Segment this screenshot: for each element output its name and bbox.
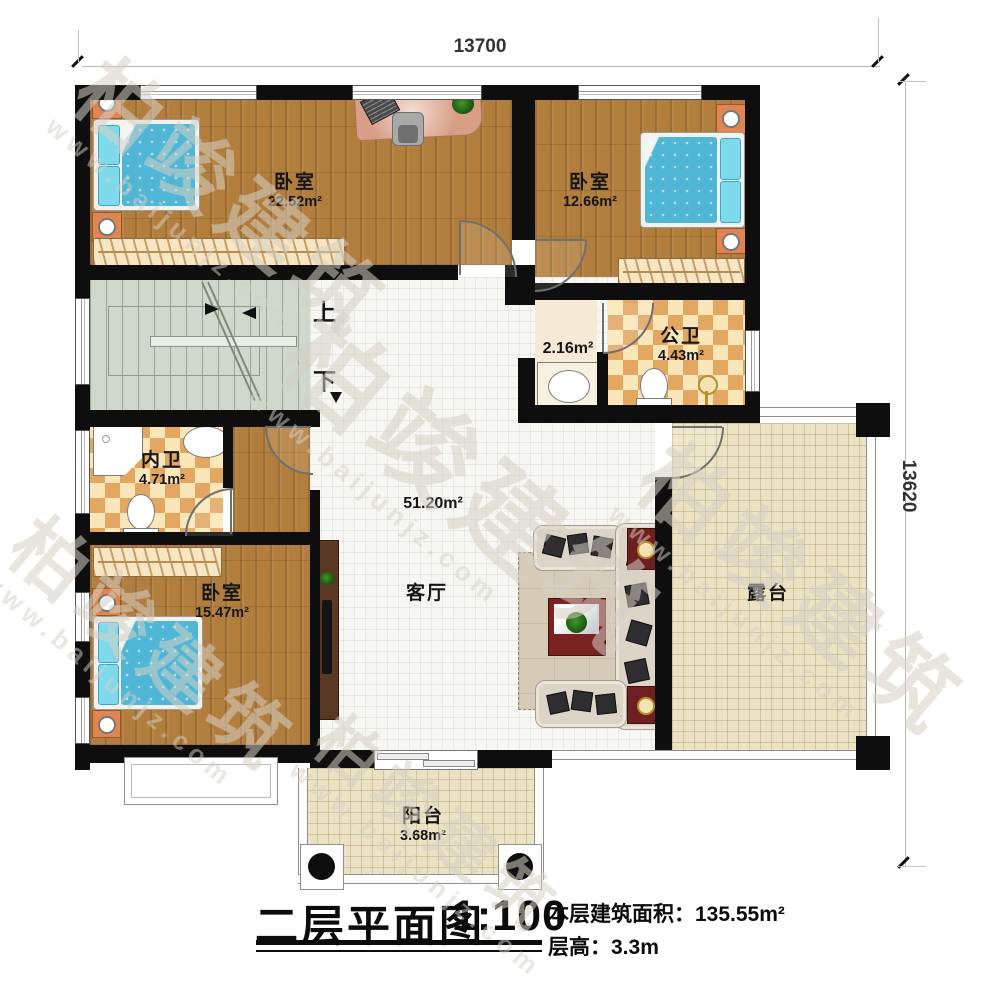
room-name: 内卫 bbox=[107, 450, 217, 472]
tv-icon bbox=[322, 600, 332, 674]
sliding-door bbox=[374, 750, 478, 770]
sofa-pillow bbox=[567, 533, 590, 556]
room-area: 12.66m² bbox=[535, 194, 645, 211]
lamp-icon bbox=[722, 233, 740, 251]
wall-innerhall-east bbox=[310, 490, 320, 545]
wall-left bbox=[75, 85, 90, 770]
bed bbox=[640, 132, 745, 228]
stair-handrail bbox=[150, 336, 297, 347]
bedroom-bottom-left-label: 卧室 15.47m² bbox=[167, 583, 277, 622]
bay-window-inner bbox=[131, 764, 271, 798]
wardrobe-rail bbox=[98, 561, 217, 563]
window bbox=[352, 85, 482, 100]
floor-height-line: 层高：3.3m bbox=[548, 931, 659, 961]
window bbox=[75, 430, 90, 514]
dimension-right-value: 13620 bbox=[897, 436, 919, 536]
extension-line bbox=[898, 81, 926, 82]
window bbox=[75, 592, 90, 642]
floor-height-value: 3.3m bbox=[611, 936, 659, 959]
window bbox=[75, 298, 90, 385]
wall-privatebath-east bbox=[223, 423, 233, 488]
down-arrow-icon bbox=[330, 392, 342, 403]
window bbox=[75, 697, 90, 744]
room-area: 15.47m² bbox=[167, 605, 277, 622]
room-area: 4.71m² bbox=[107, 472, 217, 489]
coffee-table bbox=[548, 598, 606, 656]
door-leaf bbox=[459, 220, 461, 275]
room-area: 2.16m² bbox=[516, 340, 620, 358]
pillow bbox=[98, 622, 119, 663]
sofa-pillow bbox=[590, 535, 613, 558]
room-name: 阳台 bbox=[368, 806, 478, 828]
balcony-label: 阳台 3.68m² bbox=[368, 806, 478, 845]
table-lamp-icon bbox=[637, 541, 655, 559]
quilt bbox=[645, 137, 717, 223]
wall-vanity-west bbox=[518, 358, 535, 408]
wall-living-south-right bbox=[476, 750, 552, 768]
round-column bbox=[308, 853, 335, 880]
room-area: 51.20m² bbox=[378, 495, 488, 513]
room-area: 22.52m² bbox=[240, 194, 350, 211]
room-name: 客厅 bbox=[372, 583, 482, 605]
floor-area-line: 本层建筑面积：135.55m² bbox=[548, 898, 785, 928]
chair-seat bbox=[398, 125, 418, 143]
wall-living-east bbox=[655, 477, 672, 752]
window bbox=[578, 85, 702, 100]
sliding-panel bbox=[377, 753, 429, 760]
round-column bbox=[506, 853, 533, 880]
bay-window bbox=[124, 757, 278, 805]
sink-icon bbox=[548, 370, 590, 403]
nightstand bbox=[92, 588, 121, 616]
sofa-pillow bbox=[542, 534, 566, 558]
balcony-column-base bbox=[498, 844, 542, 890]
stairs-up-label: 上 bbox=[313, 293, 336, 327]
floor-area-label: 本层建筑面积： bbox=[548, 903, 695, 926]
wardrobe-rail bbox=[98, 251, 340, 253]
table-lamp-icon bbox=[637, 697, 655, 715]
lamp-icon bbox=[98, 594, 116, 612]
public-bathroom-label: 公卫 4.43m² bbox=[626, 326, 736, 365]
pillow bbox=[98, 125, 120, 165]
wall-stairs-south bbox=[75, 410, 320, 427]
bed bbox=[93, 616, 203, 710]
floor-height-label: 层高： bbox=[548, 936, 611, 959]
bed bbox=[93, 119, 200, 211]
stairs-down-label: 下 bbox=[313, 362, 336, 396]
room-name: 公卫 bbox=[626, 326, 736, 348]
room-name: 卧室 bbox=[535, 172, 645, 194]
sofa-pillow bbox=[546, 691, 570, 715]
sofa-top bbox=[533, 525, 623, 571]
terrace-railing-bottom bbox=[552, 750, 874, 760]
sofa-pillow bbox=[624, 582, 649, 607]
nightstand bbox=[716, 228, 746, 254]
dimension-tick bbox=[897, 73, 910, 86]
wall-bath-south bbox=[518, 405, 760, 423]
column bbox=[856, 403, 890, 437]
room-name: 卧室 bbox=[240, 172, 350, 194]
desk-chair bbox=[392, 112, 424, 146]
floor-plan-canvas: 卧室 22.52m² 卧室 12.66m² 卧室 15.47m² 公卫 4.43… bbox=[0, 0, 1000, 990]
pillow bbox=[720, 181, 741, 223]
window bbox=[140, 85, 257, 100]
dimension-top-value: 13700 bbox=[430, 36, 530, 58]
wall-bedroom1-south bbox=[75, 265, 458, 280]
wall-bedroom-divider bbox=[512, 85, 535, 240]
nightstand bbox=[92, 710, 121, 738]
room-area: 4.43m² bbox=[626, 348, 736, 365]
extension-line bbox=[878, 18, 879, 62]
stair-break-arrow-icon bbox=[205, 303, 219, 315]
sofa-bottom bbox=[535, 680, 627, 728]
door-leaf bbox=[230, 488, 232, 534]
wall-right-upper bbox=[745, 85, 760, 300]
pillow bbox=[98, 664, 119, 705]
title-underline-thick bbox=[256, 940, 542, 945]
sofa-pillow bbox=[625, 619, 652, 646]
quilt bbox=[122, 124, 195, 206]
bedroom-top-left-label: 卧室 22.52m² bbox=[240, 172, 350, 211]
lamp-icon bbox=[98, 716, 116, 734]
living-room-area-label: 51.20m² bbox=[378, 495, 488, 513]
wall-publicbath-west bbox=[597, 352, 608, 408]
floor-area-value: 135.55m² bbox=[695, 903, 785, 926]
terrace-railing-top bbox=[760, 407, 856, 417]
pillow bbox=[98, 166, 120, 206]
sofa-pillow bbox=[624, 658, 650, 684]
door-leaf bbox=[535, 239, 585, 241]
balcony-column-base bbox=[300, 844, 344, 890]
bedroom-top-right-label: 卧室 12.66m² bbox=[535, 172, 645, 211]
window bbox=[745, 330, 760, 392]
living-room-label: 客厅 bbox=[372, 583, 482, 605]
wall-bedroom3-east bbox=[310, 545, 320, 750]
hall-niche-label: 2.16m² bbox=[516, 340, 620, 358]
door-leaf bbox=[672, 426, 722, 428]
terrace-label: 露台 bbox=[713, 583, 823, 605]
column bbox=[856, 736, 890, 770]
terrace-railing-right bbox=[866, 407, 876, 752]
room-area: 3.68m² bbox=[368, 828, 478, 845]
plant-icon bbox=[566, 612, 587, 633]
quilt bbox=[121, 621, 198, 705]
shower-drain bbox=[102, 435, 110, 443]
toilet-icon bbox=[127, 494, 155, 530]
pillow bbox=[720, 138, 741, 180]
stair-break-arrow-icon bbox=[242, 307, 256, 319]
plant-icon bbox=[320, 572, 334, 585]
nightstand bbox=[716, 104, 746, 134]
sliding-panel bbox=[423, 760, 475, 767]
shower-head-icon bbox=[698, 375, 718, 395]
sofa-pillow bbox=[571, 690, 594, 713]
room-name: 露台 bbox=[713, 583, 823, 605]
wardrobe bbox=[93, 238, 345, 267]
lamp-icon bbox=[98, 218, 116, 236]
private-bathroom-label: 内卫 4.71m² bbox=[107, 450, 217, 489]
title-underline-thin bbox=[256, 950, 542, 952]
sofa-pillow bbox=[595, 693, 617, 715]
dimension-line-top bbox=[82, 66, 880, 67]
extension-line bbox=[78, 30, 79, 62]
lamp-icon bbox=[722, 110, 740, 128]
wardrobe-rail bbox=[623, 271, 740, 273]
room-name: 卧室 bbox=[167, 583, 277, 605]
door-leaf bbox=[265, 426, 311, 428]
wall-living-south-left bbox=[310, 750, 374, 768]
extension-line bbox=[898, 866, 926, 867]
wardrobe bbox=[93, 547, 222, 577]
